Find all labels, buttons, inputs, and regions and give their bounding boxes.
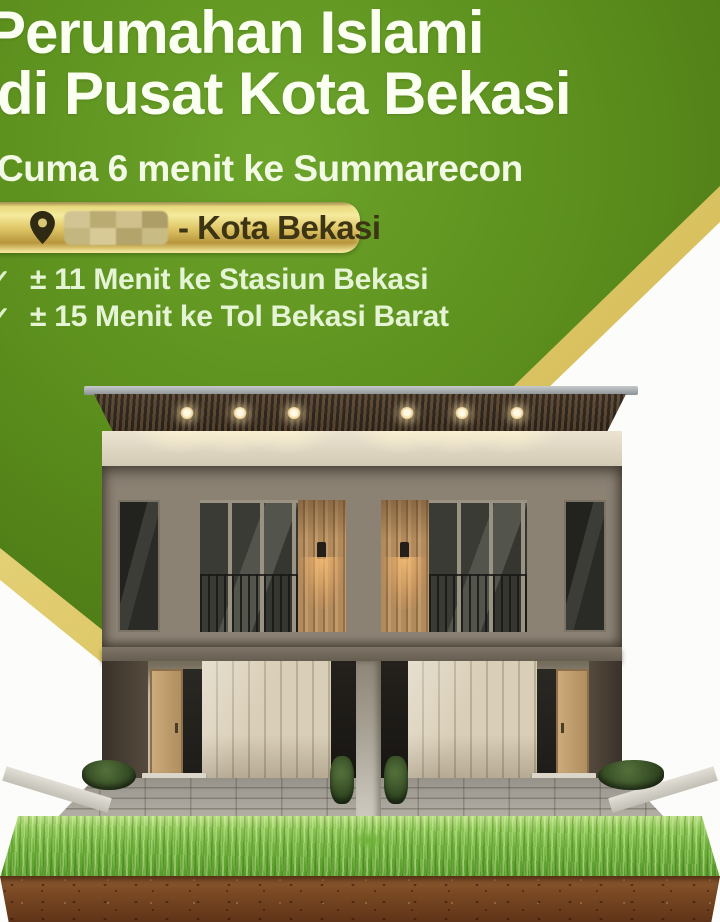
balcony-railing — [200, 574, 298, 632]
bush — [82, 760, 136, 790]
panel-cladding-left — [202, 661, 331, 783]
corner-window-left — [118, 500, 160, 632]
door-sidelight-left — [183, 669, 202, 777]
balcony-right — [381, 500, 527, 632]
downlight-icon — [233, 407, 247, 420]
downlight-icon — [510, 407, 524, 420]
wood-slat-panel — [381, 500, 429, 632]
benefit-item-2: ✓ ± 15 Menit ke Tol Bekasi Barat — [0, 300, 449, 337]
entry-door-right — [556, 669, 589, 777]
house-render — [0, 0, 720, 922]
roof-slab — [84, 386, 638, 395]
door-handle — [561, 723, 564, 733]
benefit-text-1: ± 11 Menit ke Stasiun Bekasi — [30, 263, 428, 296]
door-sidelight-right — [537, 669, 556, 777]
downlight-icon — [287, 407, 301, 420]
parapet-band — [102, 431, 622, 466]
upper-facade — [102, 466, 622, 647]
headline-line1: Perumahan Islami — [0, 2, 571, 63]
door-handle — [175, 723, 178, 733]
check-icon: ✓ — [0, 301, 11, 332]
entry-door-left — [150, 669, 183, 777]
corner-window-right — [564, 500, 606, 632]
location-badge: - Kota Bekasi — [0, 202, 360, 253]
headline-line2: di Pusat Kota Bekasi — [0, 63, 571, 124]
roof-soffit — [94, 394, 626, 431]
check-icon: ✓ — [0, 264, 11, 295]
lamp-glow — [383, 557, 427, 609]
location-badge-text: - Kota Bekasi — [178, 209, 381, 247]
location-pin-icon — [30, 211, 55, 244]
subheadline: Cuma 6 menit ke Summarecon — [0, 148, 523, 190]
benefit-text-2: ± 15 Menit ke Tol Bekasi Barat — [30, 300, 449, 333]
balcony-slab — [102, 647, 622, 661]
redacted-location-blur — [64, 211, 168, 245]
downlight-icon — [400, 407, 414, 420]
bush — [330, 756, 354, 804]
downlight-icon — [180, 407, 194, 420]
bush — [384, 756, 408, 804]
bush — [598, 760, 664, 790]
lamp-glow — [300, 557, 344, 609]
benefit-list: ✓ ± 11 Menit ke Stasiun Bekasi ✓ ± 15 Me… — [0, 263, 449, 337]
benefit-item-1: ✓ ± 11 Menit ke Stasiun Bekasi — [0, 263, 449, 300]
downlight-icon — [455, 407, 469, 420]
property-ad-poster: Perumahan Islami di Pusat Kota Bekasi Cu… — [0, 0, 720, 922]
headline: Perumahan Islami di Pusat Kota Bekasi — [0, 2, 571, 124]
balcony-railing — [429, 574, 527, 632]
balcony-left — [200, 500, 346, 632]
panel-cladding-right — [408, 661, 537, 783]
grass-tuft — [350, 832, 388, 848]
wood-slat-panel — [298, 500, 346, 632]
soil-strip — [0, 876, 720, 922]
